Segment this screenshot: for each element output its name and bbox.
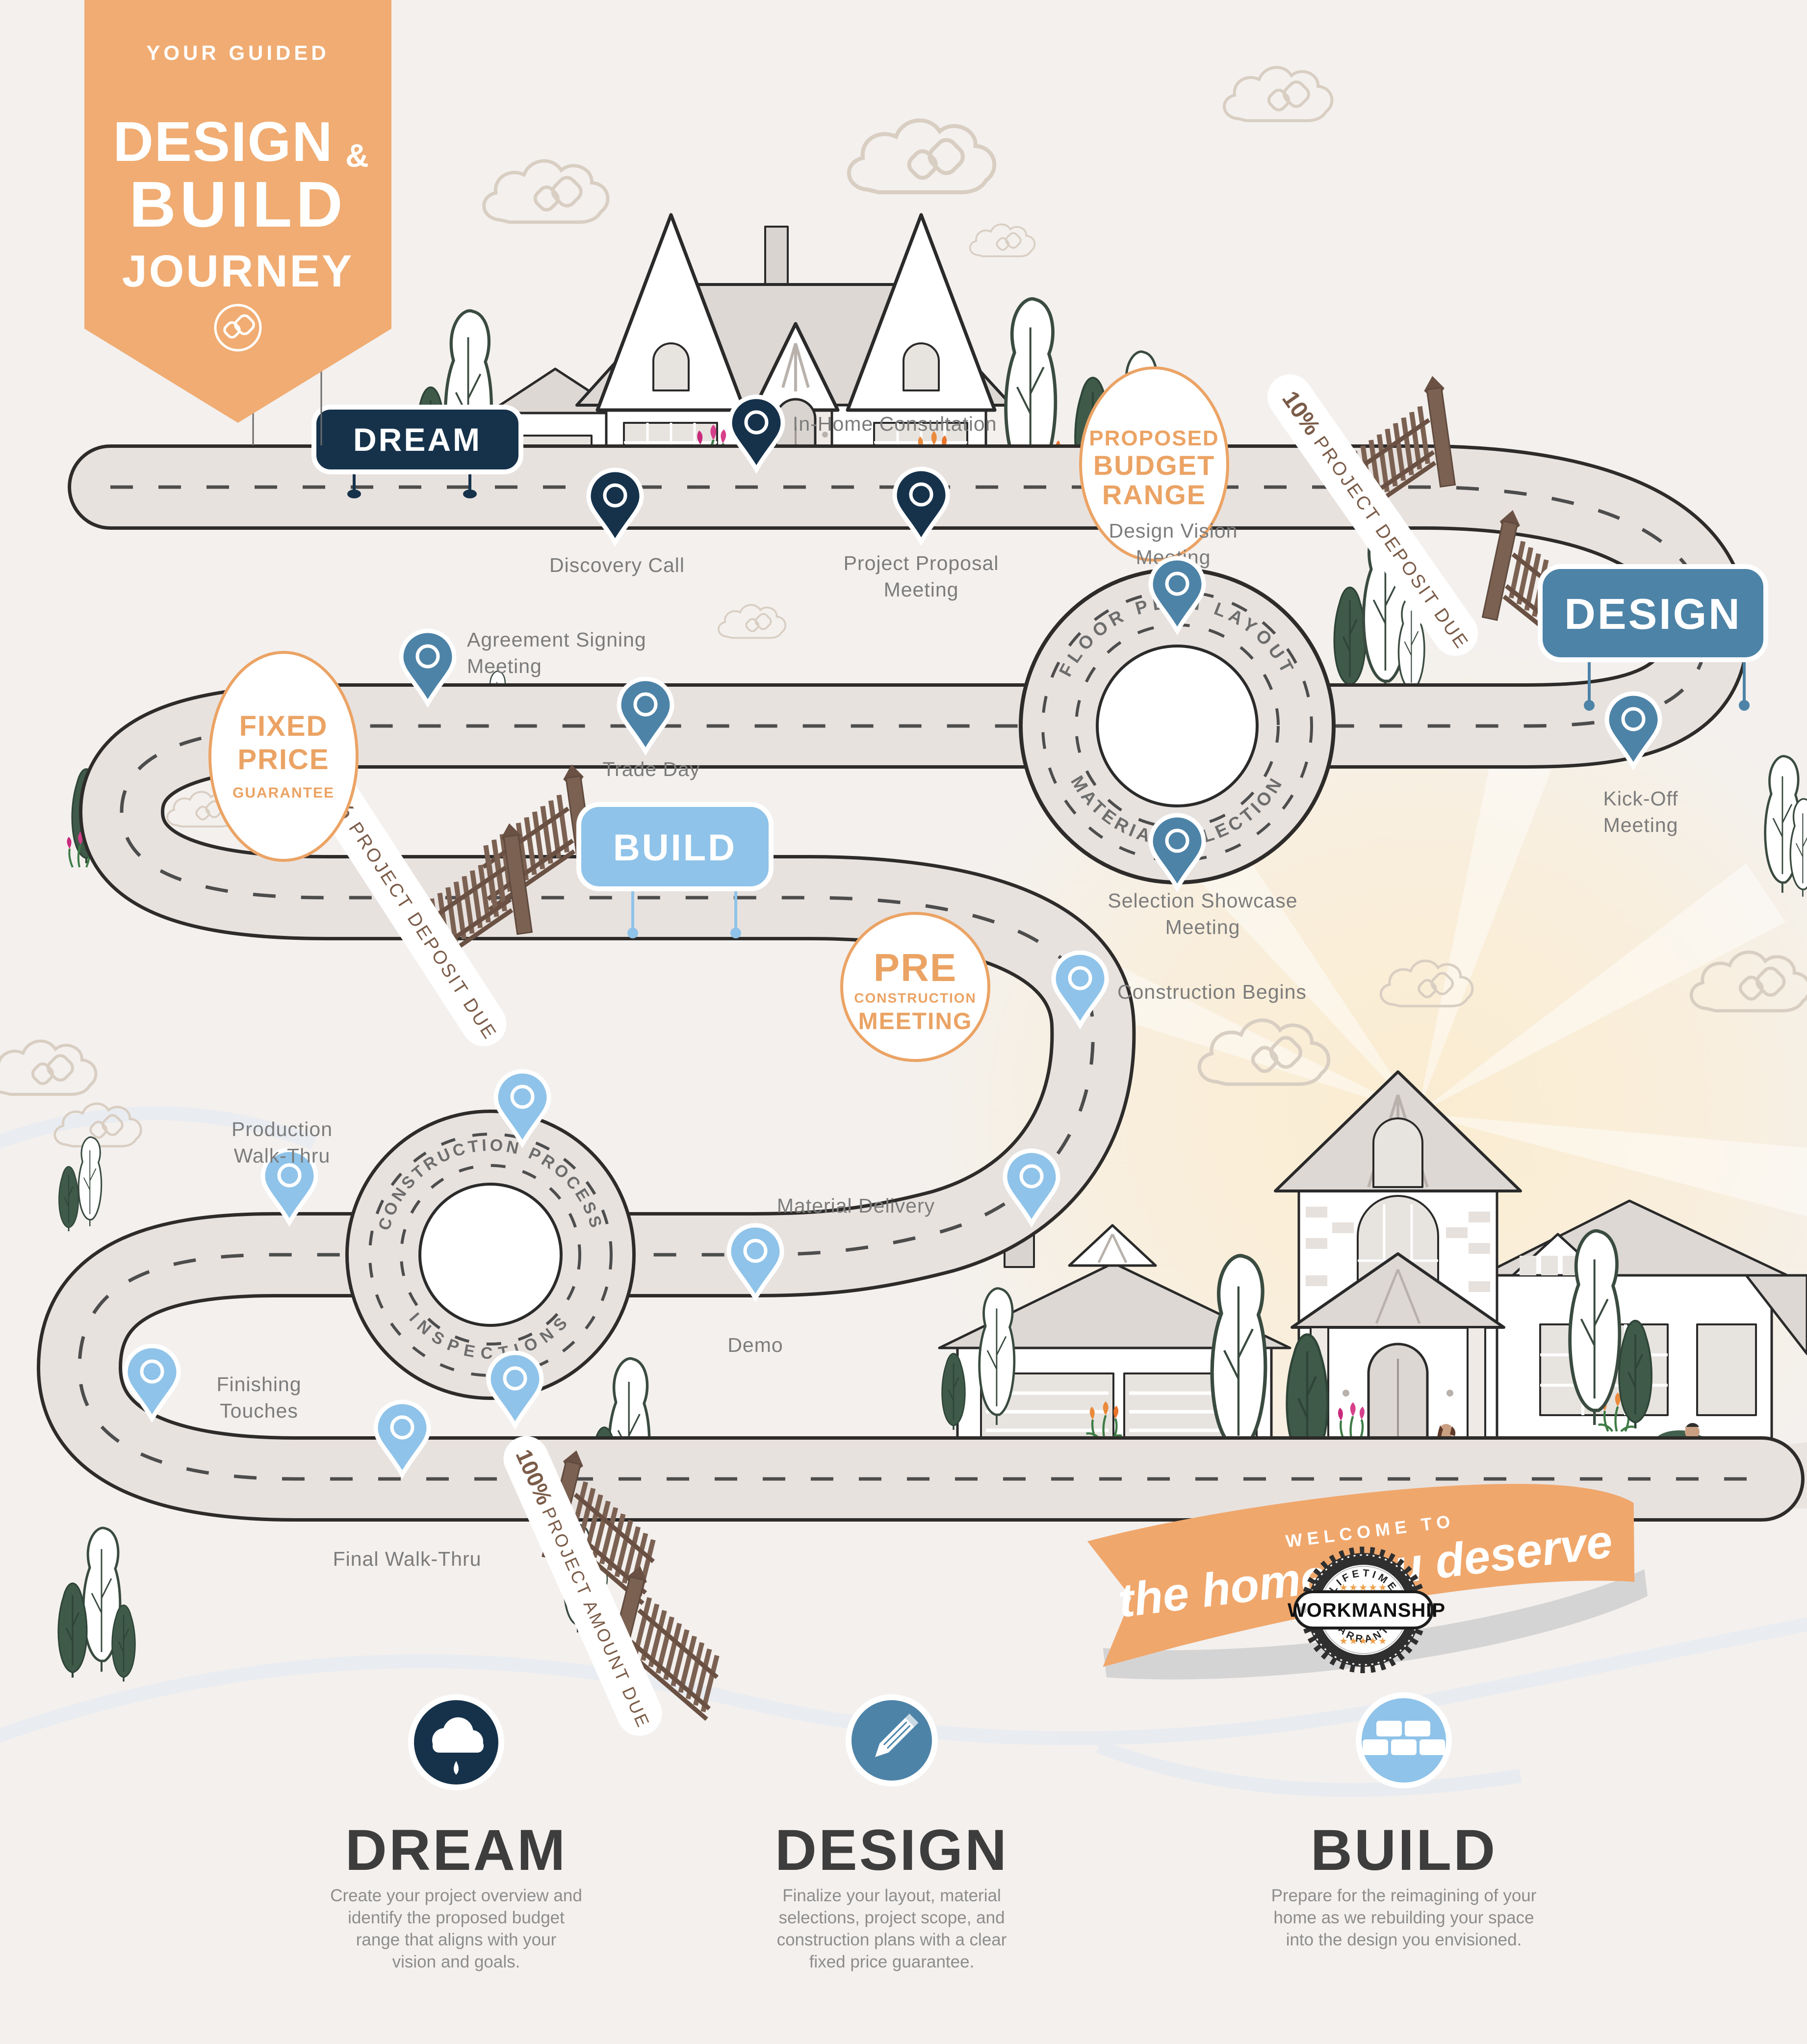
- badge-line: CONSTRUCTION: [854, 990, 977, 1006]
- footer-build-line: home as we rebuilding your space: [1273, 1908, 1534, 1927]
- badge-line: RANGE: [1102, 479, 1206, 510]
- badge-line: GUARANTEE: [232, 785, 335, 801]
- footer-build-line: Prepare for the reimagining of your: [1271, 1886, 1537, 1905]
- badge-line: BUDGET: [1093, 450, 1215, 481]
- badge-line: PROPOSED: [1089, 426, 1219, 450]
- label-project-proposal-1: Project Proposal: [844, 552, 999, 574]
- footer-dream-title: DREAM: [345, 1818, 568, 1883]
- label-discovery-call: Discovery Call: [549, 554, 685, 576]
- footer-dream-line: range that aligns with your: [356, 1930, 557, 1949]
- badge-line: MEETING: [858, 1009, 973, 1035]
- label-production-1: Production: [232, 1118, 333, 1140]
- label-agreement-2: Meeting: [467, 655, 542, 677]
- seal-workmanship: WORKMANSHIP: [1288, 1600, 1446, 1621]
- label-finishing-1: Finishing: [216, 1373, 301, 1396]
- label-project-proposal-2: Meeting: [884, 578, 959, 601]
- banner-title-design: DESIGN: [113, 111, 333, 173]
- badge-line: PRICE: [237, 744, 329, 776]
- label-selection-1: Selection Showcase: [1108, 889, 1297, 912]
- label-agreement-1: Agreement Signing: [467, 628, 646, 651]
- label-construction-begins: Construction Begins: [1117, 981, 1307, 1003]
- label-selection-2: Meeting: [1165, 916, 1240, 938]
- footer-build-title: BUILD: [1311, 1818, 1497, 1883]
- footer-design-title: DESIGN: [775, 1818, 1008, 1883]
- dream-sign-label: DREAM: [353, 421, 482, 458]
- label-design-vision-1: Design Vision: [1109, 519, 1238, 542]
- label-production-2: Walk-Thru: [234, 1144, 331, 1167]
- label-kick-off-2: Meeting: [1603, 814, 1678, 836]
- banner-amp: &: [345, 137, 369, 174]
- label-material-delivery: Material Delivery: [777, 1194, 935, 1217]
- footer-build-line: into the design you envisioned.: [1286, 1930, 1522, 1949]
- banner-kicker: YOUR GUIDED: [146, 41, 329, 64]
- label-kick-off-1: Kick-Off: [1603, 787, 1678, 810]
- footer-design-line: construction plans with a clear: [777, 1930, 1007, 1949]
- label-trade-day: Trade Day: [603, 758, 700, 780]
- label-in-home-consultation: In-Home Consultation: [793, 413, 997, 435]
- footer-dream-line: Create your project overview and: [330, 1886, 582, 1905]
- build-sign-label: BUILD: [613, 827, 737, 869]
- badge-line: PRE: [874, 946, 957, 989]
- label-demo: Demo: [727, 1334, 783, 1356]
- footer-design-line: Finalize your layout, material: [782, 1886, 1001, 1905]
- banner-title-build: BUILD: [129, 168, 346, 240]
- footer-dream-line: identify the proposed budget: [348, 1908, 565, 1927]
- fixed-price-badge: FIXED PRICE GUARANTEE: [210, 652, 357, 860]
- footer-design-line: selections, project scope, and: [778, 1908, 1005, 1927]
- design-build-journey-infographic: FLOOR PLAN LAYOUT MATERIAL SELECTION CON…: [0, 0, 1807, 2044]
- banner-title-journey: JOURNEY: [122, 246, 354, 296]
- pre-construction-badge: PRE CONSTRUCTION MEETING: [842, 913, 989, 1061]
- label-final-walkthru: Final Walk-Thru: [333, 1548, 482, 1570]
- seal-stars-bottom: ★★★★★: [1339, 1636, 1388, 1647]
- badge-line: FIXED: [239, 710, 328, 742]
- footer-dream-line: vision and goals.: [392, 1952, 520, 1971]
- footer-design-line: fixed price guarantee.: [809, 1952, 975, 1971]
- label-finishing-2: Touches: [220, 1399, 298, 1422]
- roundabout-construction: [370, 1134, 611, 1375]
- design-sign-label: DESIGN: [1564, 590, 1741, 638]
